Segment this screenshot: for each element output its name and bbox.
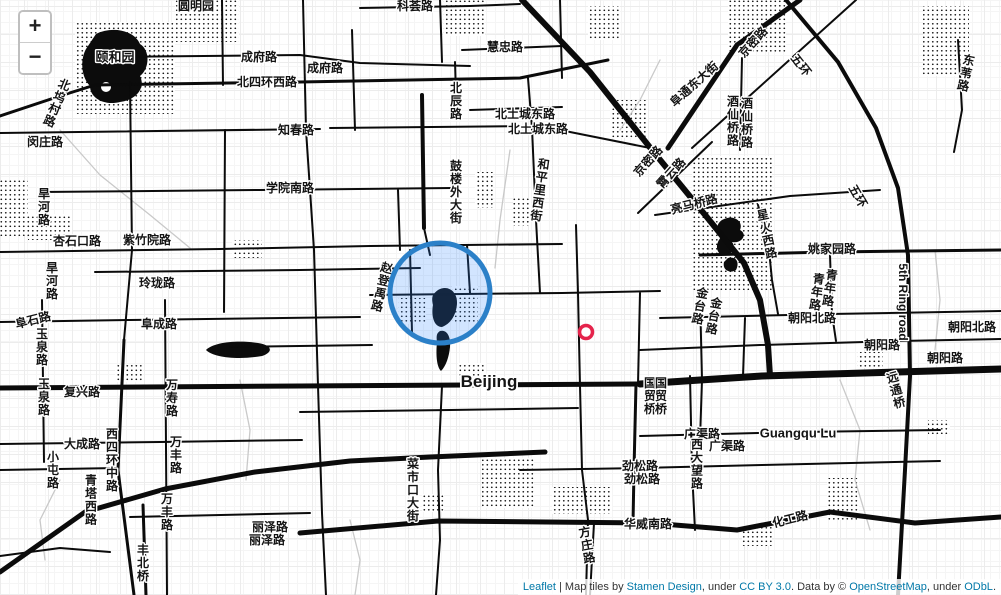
water-body <box>206 342 270 358</box>
road <box>40 188 452 192</box>
zoom-in-button[interactable]: + <box>20 12 50 42</box>
road-label: 玉泉路 <box>38 377 51 417</box>
road <box>633 384 636 523</box>
road <box>520 461 940 470</box>
road <box>422 95 424 228</box>
road-label: 圆明园 <box>178 0 214 13</box>
road-label: 丽泽路 <box>252 519 289 534</box>
road-label: 酒仙桥路 <box>727 95 740 148</box>
road-label: 成府路 <box>307 60 344 75</box>
road-label: 小屯路 <box>47 449 60 490</box>
road <box>0 317 360 322</box>
road-label: 朝阳北路 <box>788 310 837 325</box>
road-label: 复兴路 <box>63 384 101 399</box>
attribution-link[interactable]: CC BY 3.0 <box>739 581 791 593</box>
road-label: 北辰路 <box>450 80 463 121</box>
road-label: 知春路 <box>277 122 315 137</box>
road <box>743 318 745 376</box>
road-label: 鼓楼外大街 <box>449 158 463 225</box>
road <box>436 386 442 595</box>
poi-circle-marker[interactable] <box>580 326 593 339</box>
road <box>640 339 1001 350</box>
road-label: 菜市口大街 <box>406 456 419 523</box>
road-label: 紫竹院路 <box>123 232 172 247</box>
zoom-control: + − <box>18 10 52 75</box>
road-label: 丽泽路 <box>249 532 286 547</box>
road-label: 成府路 <box>241 49 278 64</box>
road-label: 大成路 <box>64 436 101 451</box>
road <box>0 129 320 133</box>
minor-road <box>935 250 940 350</box>
road-label: 朝阳路 <box>864 337 901 352</box>
road <box>300 408 578 412</box>
road <box>0 548 110 556</box>
map-tiles-layer: 颐和园圆明园成府路成府路北四环西路科荟路慧忠路北土城东路北土城东路知春路学院南路… <box>0 0 1001 595</box>
road-label: 劲松路 <box>621 458 659 473</box>
road <box>303 0 306 130</box>
road-label: 酒仙桥路 <box>741 97 754 150</box>
road <box>638 293 640 384</box>
road-label: 朝阳北路 <box>948 319 997 334</box>
road-label: 姚家园路 <box>807 241 857 256</box>
road <box>576 225 580 386</box>
road-label: 朝阳路 <box>927 350 964 365</box>
road <box>306 130 318 386</box>
road-label: 青塔西路 <box>85 473 98 527</box>
minor-road <box>240 380 250 480</box>
minor-road <box>495 150 510 268</box>
road-label: 西四环中路 <box>106 427 119 493</box>
road-label: 5th Ring road <box>896 263 910 340</box>
attribution-text: . <box>993 581 996 593</box>
road-label: 北土城东路 <box>495 106 556 121</box>
road-label: 化工路 <box>771 507 811 531</box>
road <box>318 386 326 595</box>
minor-road <box>60 130 190 248</box>
attribution-link[interactable]: OpenStreetMap <box>849 581 927 593</box>
road-label: Guangqu Lu <box>760 426 837 441</box>
road-label: 北坞村路 <box>41 75 73 130</box>
zoom-out-button[interactable]: − <box>20 42 50 73</box>
road-label: 广渠路 <box>709 438 746 453</box>
road-label: 和平里西街 <box>528 156 550 224</box>
park-area <box>0 180 28 236</box>
attribution-text: , under <box>927 581 964 593</box>
road-label: 万丰路 <box>160 492 174 532</box>
road-label: 慧忠路 <box>487 39 524 54</box>
road-label: 玉泉路 <box>36 327 49 367</box>
road-label: 万寿路 <box>165 378 179 418</box>
road <box>0 452 545 572</box>
road-label: 闵庄路 <box>27 134 64 149</box>
attribution-text: , under <box>702 581 739 593</box>
radius-circle-overlay[interactable] <box>390 243 490 343</box>
park-area <box>513 198 531 226</box>
road-label: 万丰路 <box>169 435 183 475</box>
road-label: 远通桥 <box>885 369 908 411</box>
attribution: Leaflet | Map tiles by Stamen Design, un… <box>518 579 1001 595</box>
road-label: 北四环西路 <box>237 74 298 89</box>
attribution-text: | Map tiles by <box>556 581 627 593</box>
park-area <box>422 494 444 512</box>
road <box>398 190 400 250</box>
road <box>165 300 167 595</box>
road-label: 丰北桥 <box>137 542 150 583</box>
road-label: 旱河路 <box>37 187 51 227</box>
road <box>130 513 310 517</box>
road <box>0 440 302 444</box>
road <box>222 0 223 85</box>
road-label: 华威南路 <box>624 516 673 531</box>
attribution-link[interactable]: ODbL <box>964 581 993 593</box>
road-label: 科荟路 <box>397 0 434 13</box>
road-label: 国贸桥 <box>655 376 668 416</box>
attribution-link[interactable]: Stamen Design <box>627 581 702 593</box>
road <box>124 82 132 340</box>
road-label: 五环 <box>788 51 814 79</box>
park-area <box>588 6 620 40</box>
attribution-text: . Data by © <box>791 581 849 593</box>
park-area <box>475 172 493 208</box>
city-label: Beijing <box>461 372 518 391</box>
road-label: 颐和园 <box>95 50 134 65</box>
road-label: 旱河路 <box>45 261 59 301</box>
road-label: 学院南路 <box>266 180 315 195</box>
park-area <box>115 365 143 382</box>
map-canvas[interactable]: 颐和园圆明园成府路成府路北四环西路科荟路慧忠路北土城东路北土城东路知春路学院南路… <box>0 0 1001 595</box>
road-label: 五环 <box>846 182 870 210</box>
road <box>440 0 442 62</box>
park-area <box>482 458 534 508</box>
park-area <box>552 487 612 514</box>
park-area <box>857 352 883 368</box>
road-label: 劲松路 <box>623 471 661 486</box>
road <box>640 369 1001 384</box>
attribution-link[interactable]: Leaflet <box>523 581 556 593</box>
road-label: 杏石口路 <box>52 233 102 248</box>
water-body <box>82 30 147 103</box>
road-label: 阜成路 <box>141 316 178 331</box>
road <box>95 268 420 272</box>
road <box>224 130 225 312</box>
road-label: 西大望路 <box>691 438 704 491</box>
minor-road <box>350 520 360 595</box>
road-label: 北土城东路 <box>508 121 569 136</box>
road-label: 玲珑路 <box>139 275 176 290</box>
park-area <box>928 420 950 434</box>
